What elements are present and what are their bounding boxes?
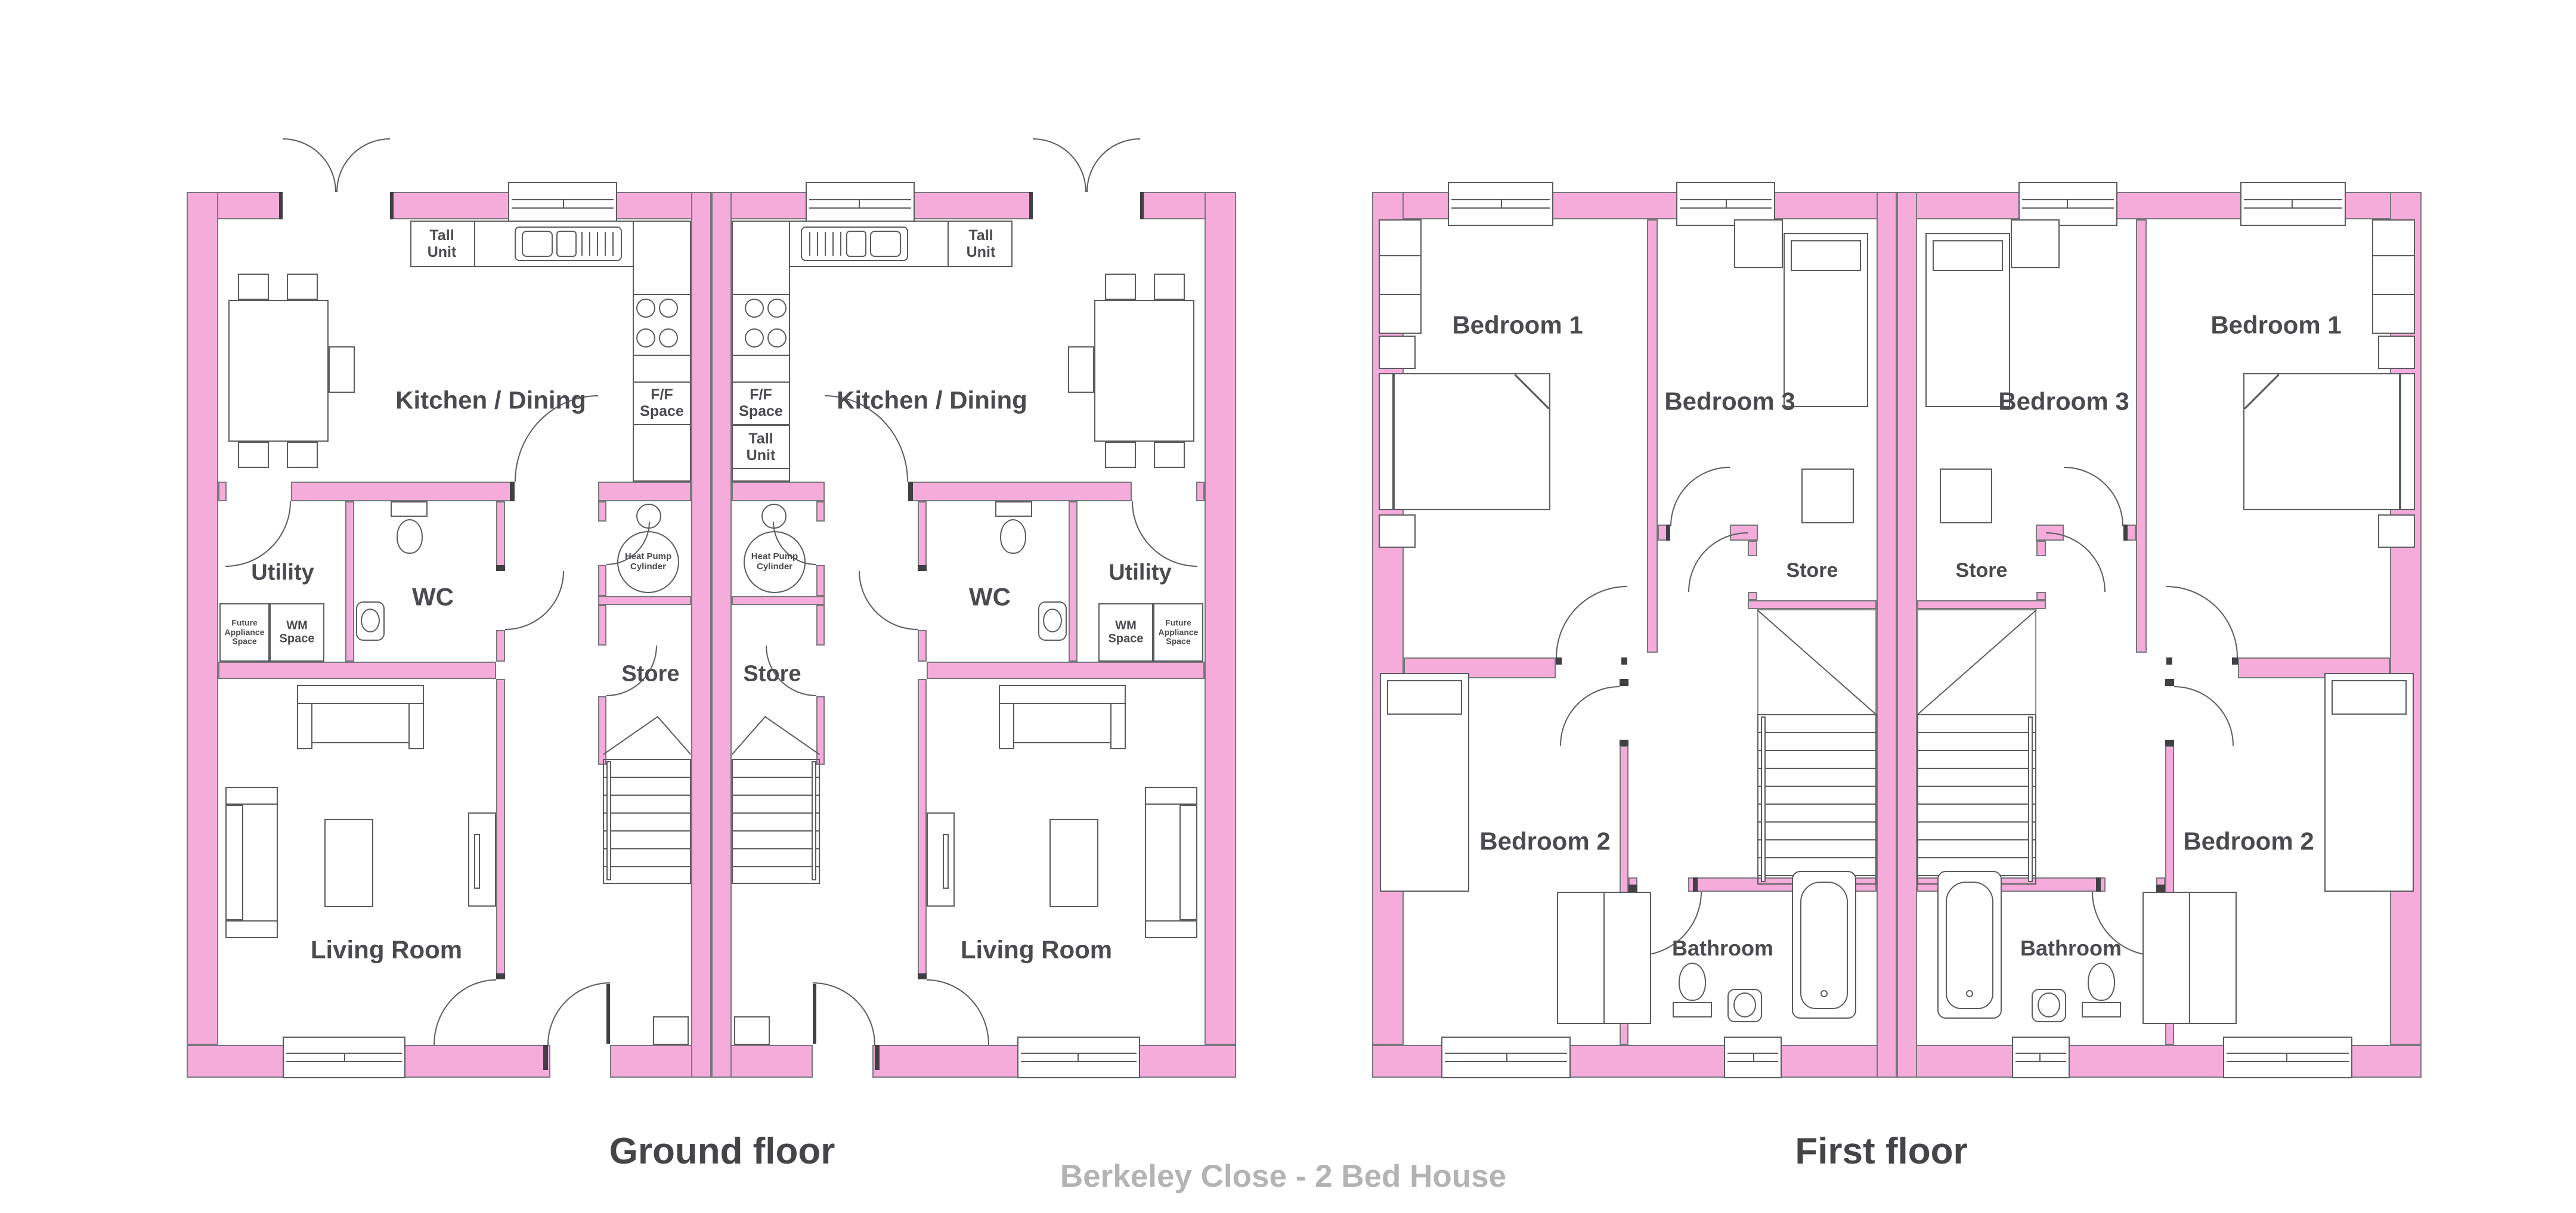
wall-hp-left-lower <box>598 565 606 596</box>
bedroom1-door-arc <box>1556 586 1627 657</box>
double-bed-headboard <box>2400 373 2415 510</box>
wardrobe-shelf-line <box>2372 255 2415 256</box>
ground-floor-unit: Tall Unit Kitchen / Dining F/F Space Tal… <box>181 175 711 1078</box>
bedroom3-label: Bedroom 3 <box>1974 387 2153 415</box>
window-glazing <box>1021 1053 1137 1062</box>
bedroom1-door-jamb <box>2232 657 2238 665</box>
wall-middle-living <box>218 662 496 679</box>
caption-first-floor: First floor <box>1702 1130 2060 1172</box>
bedside-table <box>1379 514 1416 548</box>
living-room-window <box>1017 1037 1140 1078</box>
bedside-table <box>1379 336 1416 369</box>
heat-pump-label: Heat Pump Cylinder <box>748 552 801 572</box>
living-room-window <box>283 1037 405 1078</box>
window-mullion <box>1501 199 1502 209</box>
wardrobe <box>2372 219 2415 334</box>
single-bed-pillow <box>1791 240 1861 271</box>
front-door-leaf <box>813 984 816 1044</box>
wc-label: WC <box>948 582 1032 610</box>
dining-chair <box>1154 442 1185 468</box>
bedroom1-window <box>2240 182 2346 226</box>
future-appliance-label: Future Appliance Space <box>221 618 268 646</box>
coffee-table <box>1049 819 1098 907</box>
stairs-handrail <box>812 761 816 880</box>
bedroom2-door-jamb <box>1620 679 1628 686</box>
store-door-arc <box>2046 532 2106 592</box>
wm-space-label: WM Space <box>1102 619 1150 646</box>
wall-kitchen-divider-c <box>598 482 691 501</box>
toilet-cistern <box>1673 1002 1712 1017</box>
desk <box>1801 469 1854 523</box>
ff-space-label: F/F Space <box>634 386 689 420</box>
tv-unit <box>468 812 496 907</box>
living-room-door-arc <box>434 979 496 1045</box>
wall-hp-bottom <box>732 596 825 605</box>
living-room-door-arc <box>927 979 989 1045</box>
dining-chair <box>287 274 318 300</box>
front-door-leaf <box>606 984 610 1044</box>
bedroom2-label: Bedroom 2 <box>1456 827 1634 855</box>
threshold-step <box>653 1016 689 1045</box>
toilet-bowl <box>397 519 423 554</box>
window-mullion <box>859 199 860 209</box>
bedroom1-window <box>1448 182 1553 226</box>
bed-fold-line <box>2244 374 2279 409</box>
tv-unit <box>927 812 955 907</box>
window-glazing <box>809 199 911 209</box>
toilet-cistern <box>995 501 1032 517</box>
bedroom2-window <box>2223 1037 2352 1078</box>
bathroom-door-jamb <box>1693 877 1698 892</box>
wall-living-hall <box>918 679 927 979</box>
dining-chair <box>238 274 269 300</box>
wall-store-left-b <box>1748 592 1757 600</box>
sofa-seat <box>303 703 418 743</box>
wall-living-hall <box>496 679 505 979</box>
kitchen-dining-label: Kitchen / Dining <box>807 386 1057 414</box>
living-door-jamb <box>496 973 505 979</box>
sofa2-arm <box>225 920 278 938</box>
sofa-arm <box>999 703 1014 749</box>
wall-wc-hall-upper <box>918 501 927 571</box>
wardrobe <box>2011 219 2060 268</box>
stairs-first <box>1917 714 2036 885</box>
tall-unit-divider <box>474 221 475 267</box>
patio-jamb-right <box>1029 192 1033 219</box>
wc-door-jamb <box>496 565 505 571</box>
kitchen-window <box>508 182 617 226</box>
dining-chair <box>1105 442 1136 468</box>
caption-project-title: Berkeley Close - 2 Bed House <box>1045 1158 1522 1195</box>
wall-store-bottom <box>1917 600 2046 609</box>
hob-burner <box>659 328 678 348</box>
double-bed-headboard <box>1379 373 1394 510</box>
kitchen-door-jamb <box>908 482 913 501</box>
sofa-back <box>999 685 1126 704</box>
living-door-jamb <box>918 973 927 979</box>
dining-chair <box>238 442 269 468</box>
wall-store-left-lower <box>598 696 606 765</box>
bedroom2-label: Bedroom 2 <box>2159 827 2338 855</box>
wall-hp-left-upper <box>816 501 825 522</box>
kitchen-door-jamb <box>510 482 515 501</box>
store-label: Store <box>724 662 820 687</box>
sofa-arm <box>408 703 424 749</box>
party-wall <box>691 192 711 1078</box>
store-label: Store <box>1767 559 1857 582</box>
wardrobe <box>1379 219 1422 334</box>
bedroom1-door-arc <box>2166 586 2238 657</box>
dining-chair <box>287 442 318 468</box>
front-door-arc <box>813 982 875 1045</box>
heat-pump-label: Heat Pump Cylinder <box>621 552 675 572</box>
utility-label: Utility <box>217 560 348 586</box>
basin-bowl <box>361 609 380 632</box>
party-wall <box>1897 192 1917 1078</box>
caption-ground-floor: Ground floor <box>543 1130 901 1172</box>
future-appliance-label: Future Appliance Space <box>1154 618 1202 646</box>
dining-table <box>1094 300 1194 442</box>
single-bed-pillow <box>1933 240 2003 271</box>
window-mullion <box>2287 1053 2288 1062</box>
window-glazing <box>2022 199 2114 209</box>
window-glazing <box>2244 199 2342 209</box>
stairs-ground <box>732 759 820 884</box>
stairs-handrail <box>606 761 611 880</box>
toilet-bowl <box>1000 519 1026 554</box>
party-wall <box>711 192 732 1078</box>
bath-drain <box>1966 990 1973 997</box>
tv <box>474 834 480 889</box>
patio-jamb-left <box>279 192 283 219</box>
front-door-jamb <box>543 1045 548 1070</box>
bedroom3-label: Bedroom 3 <box>1640 387 1819 415</box>
tall-unit-mid-label: Tall Unit <box>733 430 788 464</box>
wall-store-bottom <box>1748 600 1877 609</box>
hob-burner <box>745 299 764 318</box>
sofa2-arm <box>1145 920 1197 938</box>
hob-burner <box>636 299 655 318</box>
sofa2-back <box>1179 805 1197 920</box>
wall-left <box>187 192 218 1045</box>
kitchen-window <box>806 182 915 226</box>
hob-burner <box>636 328 655 348</box>
patio-jamb-right <box>390 192 394 219</box>
single-bed-pillow <box>1387 680 1462 715</box>
wall-store-left-a <box>2036 541 2046 556</box>
window-mullion <box>1726 199 1727 209</box>
bedroom1-door-jamb <box>2166 657 2172 665</box>
wardrobe-divider-line <box>2189 892 2190 1024</box>
ff-space-label: F/F Space <box>733 386 788 420</box>
tall-unit-label: Tall Unit <box>413 227 470 260</box>
sink-bowl-half <box>556 231 577 257</box>
basin-bowl <box>1733 992 1756 1017</box>
bedside-table <box>2378 336 2415 369</box>
bathroom-door-jamb <box>2096 877 2101 892</box>
front-door-arc <box>547 982 610 1045</box>
threshold-step <box>734 1016 770 1045</box>
stairs-break-line <box>732 716 766 755</box>
first-floor-plan: Bedroom 1 Bedroom 3 Store Bedroom 2 Bath… <box>1366 175 2428 1078</box>
bathroom-label: Bathroom <box>1651 936 1794 960</box>
wall-bed1-bed3 <box>1647 219 1658 653</box>
stairs-first <box>1757 714 1877 885</box>
wall-middle-living <box>927 662 1205 679</box>
bedroom1-door-jamb <box>1621 657 1627 665</box>
bedside-table <box>2378 514 2415 548</box>
sofa2-arm <box>225 787 278 805</box>
ground-floor-plan: Tall Unit Kitchen / Dining F/F Space Tal… <box>181 175 1242 1078</box>
wall-kitchen-divider-c <box>732 482 825 501</box>
bathroom-door-jamb <box>2156 885 2165 892</box>
wall-kitchen-divider-b <box>291 482 515 501</box>
utility-door-arc <box>1132 501 1197 567</box>
toilet-cistern <box>391 501 428 517</box>
wall-wc-hall-upper <box>496 501 505 571</box>
sofa2-back <box>225 805 243 920</box>
bath-drain <box>1820 990 1828 997</box>
living-room-label: Living Room <box>941 935 1132 963</box>
bedroom1-label: Bedroom 1 <box>2187 311 2366 339</box>
stairs-handrail <box>2028 716 2033 882</box>
bedroom2-window <box>1441 1037 1571 1078</box>
patio-door-leaf-left <box>283 138 336 192</box>
sink-drainer <box>806 232 841 256</box>
wardrobe-divider-line <box>1603 892 1605 1024</box>
stairs-handrail <box>1761 716 1766 882</box>
wardrobe-shelf-line <box>1379 255 1422 256</box>
store-label: Store <box>1937 559 2026 582</box>
wc-door-arc <box>859 571 918 630</box>
bathroom-window <box>2012 1037 2070 1078</box>
wc-door-arc <box>505 571 564 630</box>
patio-door-leaf-right <box>1033 138 1086 192</box>
bedroom2-door-jamb <box>2165 740 2174 746</box>
party-wall <box>1877 192 1897 1078</box>
bedroom2-door-arc <box>1560 686 1620 746</box>
wc-label: WC <box>391 582 475 610</box>
sofa-back <box>297 685 424 704</box>
single-bed-pillow <box>2332 680 2407 715</box>
bedroom2-door-jamb <box>2165 679 2174 686</box>
wall-hp-left-upper <box>598 501 606 522</box>
stairs-break-line <box>657 716 691 755</box>
hob-burner <box>767 299 787 318</box>
bedroom1-label: Bedroom 1 <box>1428 311 1607 339</box>
wardrobe <box>1734 219 1783 268</box>
dining-chair <box>329 346 355 393</box>
front-door-jamb <box>875 1045 880 1070</box>
bathroom-label: Bathroom <box>1999 936 2142 960</box>
toilet-cistern <box>2082 1002 2121 1017</box>
window-mullion <box>1753 1053 1754 1062</box>
window-mullion <box>2292 199 2293 209</box>
sink-bowl-main <box>870 231 901 257</box>
bathroom-window <box>1724 1037 1782 1078</box>
patio-door-leaf-right <box>336 138 390 192</box>
basin-bowl <box>1043 609 1062 632</box>
tall-unit-label: Tall Unit <box>952 227 1010 260</box>
bathroom-door-jamb <box>1628 885 1637 892</box>
wall-hp-bottom <box>598 596 691 605</box>
sofa-arm <box>1110 703 1126 749</box>
bedroom2-door-jamb <box>1620 740 1628 746</box>
basin-bowl <box>2038 992 2060 1017</box>
kitchen-dining-label: Kitchen / Dining <box>366 386 616 414</box>
bedroom2-door-arc <box>2174 686 2234 746</box>
wall-store-left-a <box>1748 541 1757 556</box>
utility-label: Utility <box>1075 560 1206 586</box>
toilet-bowl <box>1679 963 1706 1001</box>
wardrobe-shelf-line <box>1379 294 1422 295</box>
patio-jamb-left <box>1140 192 1144 219</box>
sink-bowl-main <box>522 231 553 257</box>
patio-door-leaf-left <box>1086 138 1140 192</box>
dining-chair <box>1068 346 1094 393</box>
stairs-break-line <box>603 716 658 755</box>
bed-fold-line <box>1515 374 1549 409</box>
wall-store-left-lower <box>816 696 825 765</box>
wall-store-left-b <box>2036 592 2046 600</box>
bedroom3-door-jamb <box>1666 525 1670 541</box>
first-floor-unit: Bedroom 1 Bedroom 3 Store Bedroom 2 Bath… <box>1366 175 1897 1078</box>
store-door-arc <box>1688 532 1748 592</box>
wall-bed1-bed3 <box>2136 219 2147 653</box>
tall-unit-divider <box>948 221 949 267</box>
window-mullion <box>563 199 564 209</box>
window-mullion <box>2067 199 2068 209</box>
sofa-seat <box>1005 703 1120 743</box>
wall-hp-left-lower <box>816 565 825 596</box>
bedroom3-door-arc <box>2064 467 2123 526</box>
wall-kitchen-divider-a <box>1196 482 1205 501</box>
wc-door-jamb <box>918 565 927 571</box>
hob-burner <box>745 328 764 348</box>
wall-kitchen-divider-b <box>908 482 1132 501</box>
wm-space-label: WM Space <box>273 619 321 646</box>
window-glazing <box>2015 1053 2066 1062</box>
hob-burner <box>659 299 678 318</box>
store-label: Store <box>603 662 698 687</box>
coffee-table <box>324 819 373 907</box>
sink-drainer <box>581 232 617 256</box>
utility-door-arc <box>225 501 291 567</box>
window-mullion <box>1506 1053 1507 1062</box>
wall-wc-hall-lower <box>496 630 505 662</box>
dining-chair <box>1105 274 1136 300</box>
window-mullion <box>344 1053 345 1062</box>
toilet-bowl <box>2088 963 2115 1001</box>
first-floor-unit-mirrored: Bedroom 1 Bedroom 3 Store Bedroom 2 Bath… <box>1897 175 2428 1078</box>
sofa-arm <box>297 703 312 749</box>
ground-floor-unit-mirrored: Tall Unit Kitchen / Dining F/F Space Tal… <box>711 175 1242 1078</box>
wall-left <box>1205 192 1236 1045</box>
dining-table <box>228 300 329 442</box>
hob-burner <box>767 328 787 348</box>
tv <box>943 834 949 889</box>
wall-wc-hall-lower <box>918 630 927 662</box>
bedroom3-door-jamb <box>2123 525 2128 541</box>
stairs-break-line <box>764 716 820 755</box>
sofa2-arm <box>1145 787 1197 805</box>
desk <box>1940 469 1992 523</box>
wall-store-left-upper <box>816 605 825 646</box>
wall-store-left-upper <box>598 605 606 646</box>
wardrobe-shelf-line <box>2372 294 2415 295</box>
window-glazing <box>2227 1053 2349 1062</box>
dining-chair <box>1154 274 1185 300</box>
window-mullion <box>1078 1053 1079 1062</box>
window-mullion <box>2040 1053 2041 1062</box>
bedroom3-door-arc <box>1670 467 1730 526</box>
stairs-ground <box>603 759 691 884</box>
living-room-label: Living Room <box>291 935 482 963</box>
sink-bowl-half <box>846 231 866 257</box>
bedroom1-door-jamb <box>1556 657 1562 665</box>
wall-kitchen-divider-a <box>218 482 227 501</box>
